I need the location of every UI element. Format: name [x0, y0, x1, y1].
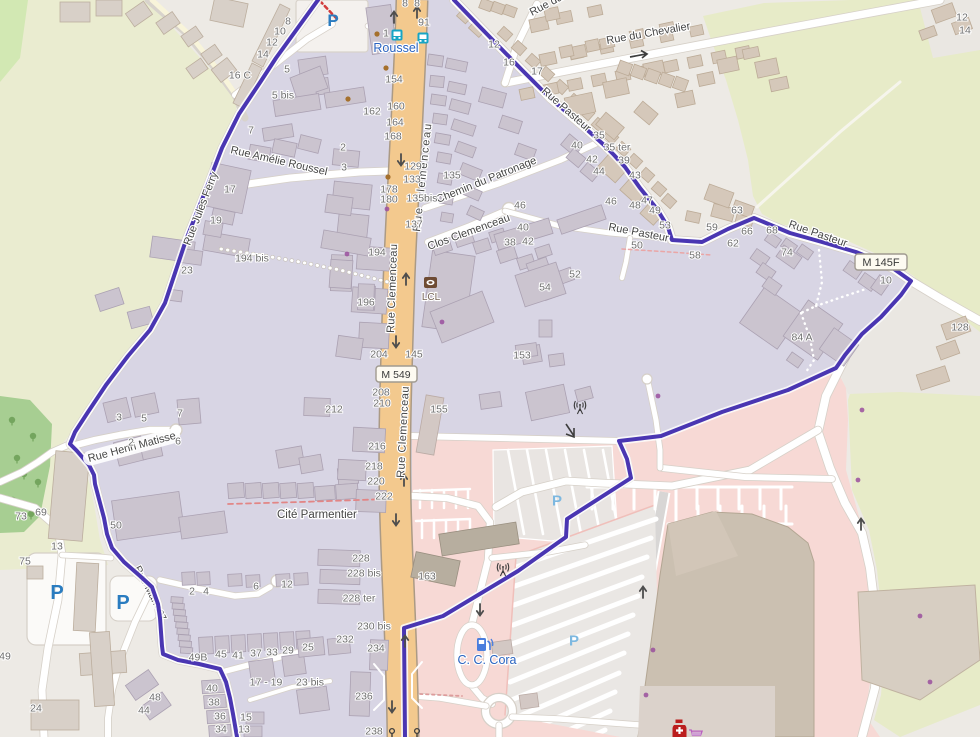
- svg-text:8: 8: [402, 0, 408, 10]
- svg-text:42: 42: [522, 236, 534, 248]
- svg-text:42: 42: [586, 154, 598, 166]
- svg-text:39: 39: [618, 155, 630, 167]
- svg-text:133: 133: [403, 174, 421, 186]
- svg-text:M 549: M 549: [381, 369, 410, 381]
- svg-text:12: 12: [956, 12, 968, 24]
- svg-text:48: 48: [629, 200, 641, 212]
- svg-text:145: 145: [405, 349, 423, 361]
- svg-text:129: 129: [404, 161, 422, 173]
- svg-text:23 bis: 23 bis: [296, 677, 324, 689]
- svg-text:P: P: [116, 592, 129, 614]
- svg-text:180: 180: [380, 194, 398, 206]
- svg-text:220: 220: [367, 476, 385, 488]
- svg-text:41: 41: [232, 650, 244, 662]
- svg-text:33: 33: [266, 647, 278, 659]
- svg-text:63: 63: [731, 205, 743, 217]
- svg-text:222: 222: [375, 491, 393, 503]
- svg-text:7: 7: [177, 408, 183, 420]
- svg-text:14: 14: [959, 25, 971, 37]
- svg-text:46: 46: [514, 200, 526, 212]
- svg-text:69: 69: [35, 507, 47, 519]
- svg-text:196: 196: [357, 297, 375, 309]
- svg-text:54: 54: [539, 282, 551, 294]
- svg-text:35 ter: 35 ter: [604, 142, 631, 154]
- svg-text:53: 53: [659, 220, 671, 232]
- svg-text:12: 12: [488, 39, 500, 51]
- svg-text:25: 25: [302, 642, 314, 654]
- svg-text:2: 2: [340, 142, 346, 154]
- svg-text:218: 218: [365, 461, 383, 473]
- svg-text:P: P: [569, 632, 579, 649]
- svg-text:216: 216: [368, 441, 386, 453]
- svg-text:74: 74: [781, 247, 793, 259]
- svg-text:17 - 19: 17 - 19: [250, 677, 283, 689]
- svg-text:194: 194: [368, 247, 386, 259]
- svg-text:35: 35: [593, 130, 605, 142]
- svg-text:38: 38: [208, 697, 220, 709]
- svg-text:236: 236: [355, 691, 373, 703]
- svg-text:34: 34: [215, 724, 227, 736]
- svg-text:230 bis: 230 bis: [357, 621, 391, 633]
- svg-text:50: 50: [631, 240, 643, 252]
- svg-text:232: 232: [336, 634, 354, 646]
- svg-text:128: 128: [951, 322, 969, 334]
- svg-text:49: 49: [649, 205, 661, 217]
- svg-text:M 145F: M 145F: [862, 257, 900, 269]
- svg-text:194 bis: 194 bis: [235, 253, 269, 265]
- svg-text:12: 12: [266, 37, 278, 49]
- svg-text:58: 58: [689, 250, 701, 262]
- svg-text:154: 154: [385, 74, 403, 86]
- svg-text:36: 36: [214, 711, 226, 723]
- svg-text:5 bis: 5 bis: [272, 90, 294, 102]
- svg-text:23: 23: [181, 265, 193, 277]
- svg-text:52: 52: [569, 269, 581, 281]
- svg-text:17: 17: [531, 66, 543, 78]
- svg-text:3: 3: [341, 162, 347, 174]
- svg-text:P: P: [50, 582, 63, 604]
- svg-text:59: 59: [706, 222, 718, 234]
- svg-text:168: 168: [384, 131, 402, 143]
- svg-text:7: 7: [248, 125, 254, 137]
- svg-text:13: 13: [238, 724, 250, 736]
- svg-text:43: 43: [629, 170, 641, 182]
- svg-text:135bis: 135bis: [407, 193, 438, 205]
- svg-text:P: P: [552, 492, 562, 509]
- svg-text:Roussel: Roussel: [373, 41, 418, 55]
- svg-text:44: 44: [593, 166, 605, 178]
- svg-text:16 C: 16 C: [229, 70, 252, 82]
- svg-text:6: 6: [253, 581, 259, 593]
- svg-text:228: 228: [352, 553, 370, 565]
- svg-text:45: 45: [215, 649, 227, 661]
- svg-text:49: 49: [0, 651, 11, 663]
- svg-text:16: 16: [503, 57, 515, 69]
- svg-text:10: 10: [880, 275, 892, 287]
- svg-text:135: 135: [443, 170, 461, 182]
- svg-text:1: 1: [383, 28, 389, 40]
- svg-text:48: 48: [149, 692, 161, 704]
- svg-text:153: 153: [513, 350, 531, 362]
- svg-text:8: 8: [285, 16, 291, 28]
- svg-text:238: 238: [365, 726, 383, 737]
- svg-text:75: 75: [19, 556, 31, 568]
- svg-text:19: 19: [210, 215, 222, 227]
- svg-text:50: 50: [110, 520, 122, 532]
- svg-text:163: 163: [418, 571, 436, 583]
- svg-text:37: 37: [250, 648, 262, 660]
- svg-text:24: 24: [30, 703, 42, 715]
- svg-text:137: 137: [405, 219, 423, 231]
- svg-text:68: 68: [766, 225, 778, 237]
- svg-text:6: 6: [175, 436, 181, 448]
- svg-text:162: 162: [363, 106, 381, 118]
- svg-text:5: 5: [284, 64, 290, 76]
- svg-text:2: 2: [189, 586, 195, 598]
- svg-text:2: 2: [128, 437, 134, 449]
- svg-text:Cité Parmentier: Cité Parmentier: [277, 509, 357, 521]
- svg-text:17: 17: [224, 184, 236, 196]
- svg-text:4: 4: [203, 586, 209, 598]
- svg-text:204: 204: [370, 349, 388, 361]
- svg-text:46: 46: [605, 196, 617, 208]
- svg-text:160: 160: [387, 101, 405, 113]
- svg-text:73: 73: [15, 511, 27, 523]
- svg-text:38: 38: [504, 237, 516, 249]
- svg-text:212: 212: [325, 404, 343, 416]
- svg-text:210: 210: [373, 398, 391, 410]
- svg-text:14: 14: [257, 49, 269, 61]
- svg-text:40: 40: [571, 140, 583, 152]
- svg-text:12: 12: [281, 579, 293, 591]
- svg-text:40: 40: [206, 683, 218, 695]
- svg-text:LCL: LCL: [422, 292, 441, 303]
- svg-text:13: 13: [51, 541, 63, 553]
- svg-text:164: 164: [386, 117, 404, 129]
- svg-text:40: 40: [517, 222, 529, 234]
- svg-text:62: 62: [727, 238, 739, 250]
- svg-text:228 ter: 228 ter: [343, 593, 376, 605]
- svg-text:234: 234: [367, 643, 385, 655]
- svg-text:5: 5: [141, 413, 147, 425]
- svg-text:29: 29: [282, 645, 294, 657]
- svg-text:228 bis: 228 bis: [347, 568, 381, 580]
- svg-text:3: 3: [116, 412, 122, 424]
- svg-text:91: 91: [418, 17, 430, 29]
- svg-text:P: P: [327, 11, 338, 30]
- svg-text:84 A: 84 A: [791, 332, 812, 344]
- svg-text:8: 8: [414, 0, 420, 10]
- svg-text:49B: 49B: [189, 652, 208, 664]
- svg-text:44: 44: [138, 705, 150, 717]
- svg-text:15: 15: [240, 712, 252, 724]
- svg-text:155: 155: [430, 404, 448, 416]
- svg-text:66: 66: [741, 226, 753, 238]
- svg-text:C. C. Cora: C. C. Cora: [457, 653, 516, 667]
